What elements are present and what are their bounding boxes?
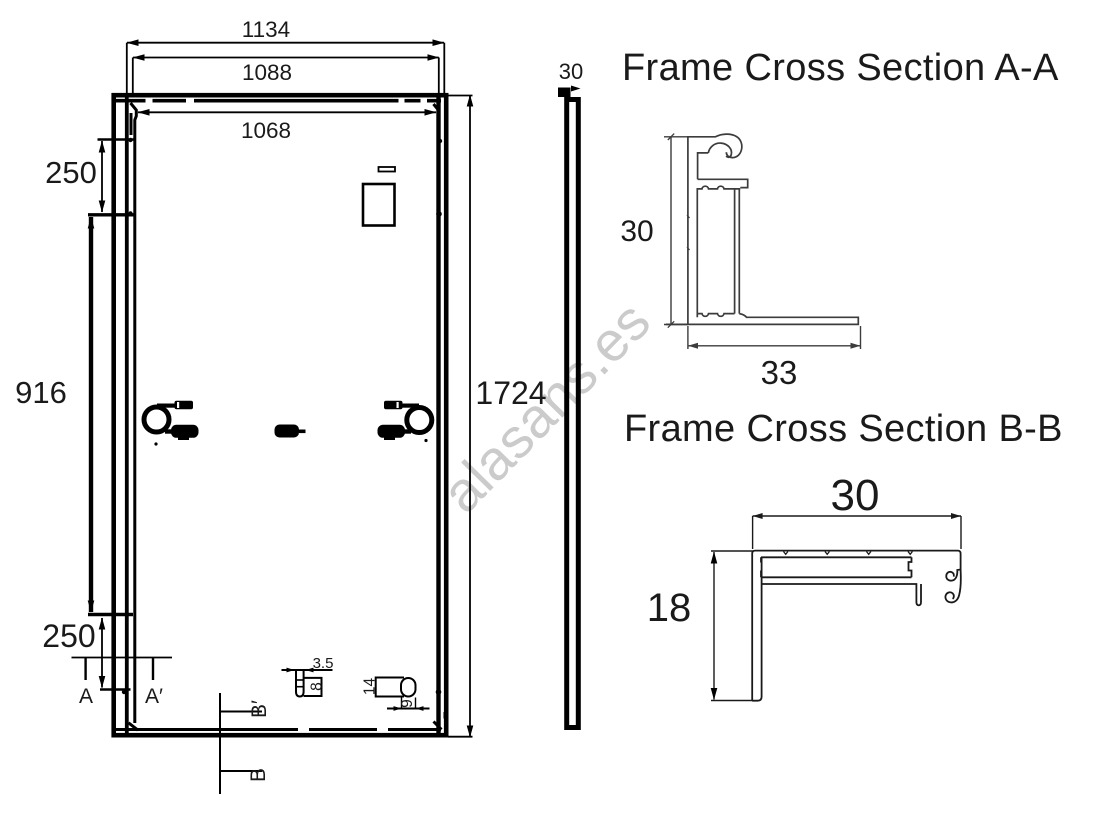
- svg-text:250: 250: [45, 155, 97, 190]
- svg-text:30: 30: [620, 215, 653, 248]
- svg-text:8: 8: [309, 682, 326, 691]
- svg-text:33: 33: [761, 354, 798, 391]
- svg-text:Frame Cross Section B-B: Frame Cross Section B-B: [624, 408, 1063, 450]
- svg-text:B′: B′: [248, 700, 271, 718]
- svg-text:Frame Cross Section A-A: Frame Cross Section A-A: [622, 47, 1059, 89]
- svg-text:3.5: 3.5: [313, 655, 334, 672]
- svg-text:30: 30: [831, 471, 880, 520]
- svg-text:30: 30: [559, 59, 583, 84]
- svg-text:1134: 1134: [242, 17, 290, 42]
- svg-text:1088: 1088: [242, 60, 292, 85]
- svg-text:1724: 1724: [475, 375, 546, 411]
- svg-text:A′: A′: [145, 685, 163, 708]
- svg-text:916: 916: [15, 375, 67, 410]
- svg-text:A: A: [79, 685, 93, 708]
- svg-text:18: 18: [647, 586, 692, 630]
- svg-text:9: 9: [399, 699, 416, 708]
- svg-text:B: B: [247, 768, 270, 782]
- svg-text:250: 250: [42, 618, 95, 654]
- svg-text:1068: 1068: [241, 118, 291, 143]
- svg-text:14: 14: [362, 678, 379, 696]
